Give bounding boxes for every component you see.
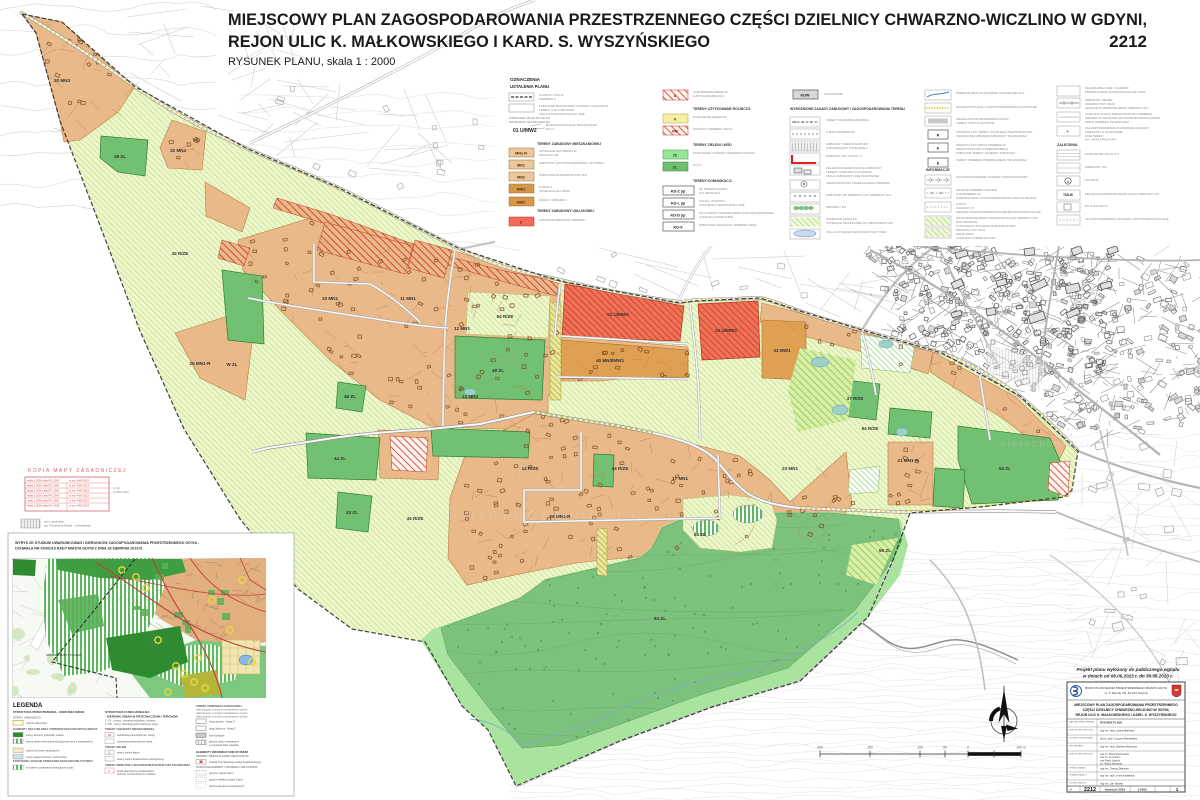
svg-text:30 MN3: 30 MN3 [54, 78, 71, 83]
svg-text:44 ZL: 44 ZL [334, 456, 346, 461]
svg-text:TERENY OBIEKTOW I URZADZEN INF: TERENY OBIEKTOW I URZADZEN INFRASTRUKTUR… [105, 763, 191, 767]
svg-text:TERENY ZIELENI: TERENY ZIELENI [105, 745, 126, 749]
svg-text:nr ew. 4424.2023: nr ew. 4424.2023 [69, 484, 89, 488]
svg-text:ZE: ZE [673, 153, 678, 157]
svg-text:LUB ZABUDOWY ISTNIEJACE Z: LUB ZABUDOWY ISTNIEJACE Z [826, 146, 868, 150]
svg-text:37 R/ZE: 37 R/ZE [847, 396, 864, 401]
svg-text:STRUKTURA PRZESTRZENNA - KIERU: STRUKTURA PRZESTRZENNA - KIERUNKI ZMIAN [13, 710, 84, 714]
svg-text:A: A [1067, 179, 1070, 184]
svg-text:LUB TECHNICZNEJ DO: LUB TECHNICZNEJ DO [693, 94, 724, 98]
svg-text:USTALENIA PLANU: USTALENIA PLANU [510, 84, 549, 89]
svg-text:ORIENTACYJNY USLUG I O: ORIENTACYJNY USLUG I O [826, 154, 863, 158]
svg-text:PRZEZNACZENIU ZAGOSPODAROWANIA: PRZEZNACZENIU ZAGOSPODAROWANIA ORAZ ISTN… [956, 196, 1037, 200]
svg-text:DO O: DO O [546, 127, 554, 131]
svg-text:LEGENDA: LEGENDA [13, 703, 43, 709]
svg-text:skala 1:2000 uklad PL-2000: skala 1:2000 uklad PL-2000 [27, 499, 60, 503]
svg-text:KDW: KDW [800, 93, 809, 97]
svg-text:USTALENIA Z TECHNICZNEJ LINIE: USTALENIA Z TECHNICZNEJ LINIE [699, 203, 745, 207]
svg-text:48 ZL: 48 ZL [492, 368, 504, 373]
svg-text:skala 1:2000 uklad PL-2000: skala 1:2000 uklad PL-2000 [27, 504, 60, 508]
svg-text:TERENY ZAGOSPODAROWANIA: TERENY ZAGOSPODAROWANIA [826, 118, 869, 122]
svg-text:40 MN3/MW1: 40 MN3/MW1 [596, 358, 625, 363]
svg-text:MN2: MN2 [517, 175, 525, 179]
svg-text:inz. Marek Karzynski: inz. Marek Karzynski [1100, 763, 1123, 766]
svg-text:wg. Prezydenta Miasta - niewys: wg. Prezydenta Miasta - niewystepuje [44, 524, 91, 528]
svg-text:TERENY ORAZ PLANOWANE: TERENY ORAZ PLANOWANE [956, 121, 995, 125]
svg-text:SPRAWDZAJACY: SPRAWDZAJACY [1069, 774, 1087, 777]
svg-text:WYRYS ZE STUDIUM UWARUNKOWAŃ I: WYRYS ZE STUDIUM UWARUNKOWAŃ I KIERUNKÓW… [15, 540, 200, 545]
svg-text:obszar koncowe strategiczne: obszar koncowe strategiczne [26, 748, 60, 752]
svg-text:TECHNICZNEJ OBSZARU ZABUDOWY T: TECHNICZNEJ OBSZARU ZABUDOWY TECHNICZNEJ [956, 134, 1027, 138]
svg-text:54 ZL: 54 ZL [999, 466, 1011, 471]
svg-text:mgr inz. Dorota Zielinska: mgr inz. Dorota Zielinska [1100, 767, 1129, 771]
svg-text:K: K [108, 769, 110, 773]
svg-text:25 MN1-R: 25 MN1-R [190, 361, 212, 366]
svg-text:PRZEBIEG O: PRZEBIEG O [539, 97, 557, 101]
svg-text:200: 200 [817, 746, 823, 750]
svg-text:INFRASTRUKTURY PRZEZNACZENIU O: INFRASTRUKTURY PRZEZNACZENIU OBSZARU [826, 181, 890, 185]
svg-text:skala 1:2000 uklad PL-2000: skala 1:2000 uklad PL-2000 [27, 479, 60, 483]
svg-text:drogi glowne - klasa G: drogi glowne - klasa G [209, 720, 235, 724]
svg-text:MW2: MW2 [517, 200, 526, 204]
svg-text:USTALENIA ZABUDOWY OBSZARU: USTALENIA ZABUDOWY OBSZARU [539, 218, 585, 222]
svg-text:USLUG USTALENIA INFRASTRUKTURY: USLUG USTALENIA INFRASTRUKTURY ORAZ [826, 230, 887, 234]
svg-text:PLANOWANE OCHRONY ROZGRANICZAJ: PLANOWANE OCHRONY ROZGRANICZAJACE I [693, 151, 756, 155]
svg-text:granica gruntow zarzadzanych: granica gruntow zarzadzanych [209, 784, 245, 788]
svg-text:54 R/ZE: 54 R/ZE [862, 426, 879, 431]
svg-text:R: R [937, 133, 940, 137]
svg-text:U: U [520, 220, 523, 224]
svg-text:49 ZL: 49 ZL [114, 154, 126, 159]
svg-text:LUB PLANOWANE DO: LUB PLANOWANE DO [826, 130, 856, 134]
svg-text:INFORMACJE: INFORMACJE [926, 168, 950, 172]
svg-text:23 MN1: 23 MN1 [782, 466, 799, 471]
svg-text:BIURO PLANOWANIA PRZESTRZENNEG: BIURO PLANOWANIA PRZESTRZENNEGO MIASTA G… [1085, 686, 1167, 690]
svg-text:obszar urbanizacji: obszar urbanizacji [26, 721, 47, 725]
svg-text:korytarze i powiazania ekologi: korytarze i powiazania ekologiczne uzytk… [26, 765, 74, 769]
svg-text:0: 0 [967, 746, 969, 750]
svg-text:tereny lasow w granicach miast: tereny lasow w granicach miasta [26, 733, 64, 737]
svg-text:ZL: ZL [673, 165, 678, 169]
svg-text:2212: 2212 [1109, 32, 1147, 51]
svg-text:ELEMENTY SIECI ZIELONEJ I TERE: ELEMENTY SIECI ZIELONEJ I TERENOW EKOLOG… [13, 727, 97, 731]
svg-text:DROGI O OBSZARU I: DROGI O OBSZARU I [539, 198, 567, 202]
svg-text:ZABUDOWY DLA: ZABUDOWY DLA [1085, 165, 1107, 169]
svg-text:dr inz. arch. Lucyna Wisniewsk: dr inz. arch. Lucyna Wisniewska [1100, 737, 1138, 741]
svg-text:TMLW: TMLW [1063, 193, 1074, 197]
svg-text:ZESPOL PROJEKTOWY: ZESPOL PROJEKTOWY [1069, 730, 1094, 732]
svg-text:43 ZL: 43 ZL [346, 510, 358, 515]
svg-text:2. MN - tereny zabudowy jednor: 2. MN - tereny zabudowy jednorodzinnej i… [105, 723, 158, 726]
svg-text:GRANICE LUB: GRANICE LUB [539, 153, 558, 157]
svg-text:W O O: W O O [693, 163, 702, 167]
svg-text:KD-Z j/p: KD-Z j/p [671, 189, 686, 193]
svg-text:NA I INFRASTRUKTURY: NA I INFRASTRUKTURY [1085, 138, 1117, 142]
svg-text:E: E [937, 161, 940, 165]
svg-text:MN1: MN1 [517, 163, 525, 167]
svg-text:mgr inz. arch. Iwona Markesic: mgr inz. arch. Iwona Markesic [1100, 729, 1135, 733]
svg-text:KOORDYNATOR: KOORDYNATOR [1069, 782, 1086, 785]
svg-text:USLUG ZABUDOWY LINIE PLANOWANE: USLUG ZABUDOWY LINIE PLANOWANE [826, 174, 879, 178]
svg-text:GLOWNY PROJEKTANT: GLOWNY PROJEKTANT [1069, 737, 1094, 740]
svg-text:P.2261.2023: P.2261.2023 [113, 490, 129, 494]
svg-text:mgr inz. arch. Barbara Wichman: mgr inz. arch. Barbara Wichman [1100, 745, 1138, 749]
svg-text:granice miasta Gdyni: granice miasta Gdyni [209, 771, 234, 775]
svg-text:12 MN1: 12 MN1 [454, 326, 471, 331]
svg-text:nieruchomosci: nieruchomosci [1000, 439, 1090, 450]
svg-text:NR: NR [1069, 790, 1073, 792]
svg-text:64 R/ZE: 64 R/ZE [497, 314, 514, 319]
svg-text:ISTNIEJACE TECHNICZNEJ DO: ISTNIEJACE TECHNICZNEJ DO [509, 120, 551, 124]
svg-text:NA LUB W: NA LUB W [1085, 178, 1099, 182]
svg-text:PROJEKTANT: PROJEKTANT [1069, 745, 1084, 748]
svg-text:21 MN1-R: 21 MN1-R [898, 458, 920, 463]
svg-text:TERENY ZIELENI I WÓD: TERENY ZIELENI I WÓD [693, 142, 732, 147]
svg-text:mgr inz. Jan Nowak: mgr inz. Jan Nowak [1100, 782, 1123, 786]
svg-text:TERENY PRZEBIEG PRZEZNACZENIU: TERENY PRZEBIEG PRZEZNACZENIU TECHNICZNE… [956, 158, 1027, 162]
svg-text:REJON ULIC K. MAŁKOWSKIEGO I K: REJON ULIC K. MAŁKOWSKIEGO I KARD. S. WY… [1076, 712, 1177, 717]
svg-text:RM: RM [672, 129, 678, 133]
svg-text:skala 1:2000 uklad PL-2000: skala 1:2000 uklad PL-2000 [27, 489, 60, 493]
svg-text:01 U/MW3: 01 U/MW3 [607, 312, 629, 317]
svg-text:ZABUDOWY ZAGOSPODAROWANIA LUB: ZABUDOWY ZAGOSPODAROWANIA LUB TERENY [539, 161, 605, 165]
svg-text:MW1: MW1 [517, 187, 526, 191]
svg-text:MIEJSCOWY PLAN ZAGOSPODAROWANI: MIEJSCOWY PLAN ZAGOSPODAROWANIA PRZESTRZ… [1074, 703, 1178, 707]
svg-text:OBSZARY OBJETE PLANAMI MIEJSCO: OBSZARY OBJETE PLANAMI MIEJSCOWYMI [196, 755, 249, 758]
svg-text:U: U [674, 94, 677, 98]
svg-text:nr ew. 4424.2023: nr ew. 4424.2023 [69, 489, 89, 493]
svg-text:kwiecień 2023: kwiecień 2023 [1105, 787, 1125, 791]
svg-text:14 R/ZE: 14 R/ZE [522, 466, 539, 471]
svg-text:ZALECENIA: ZALECENIA [1057, 143, 1078, 147]
svg-text:10 MN1: 10 MN1 [322, 296, 339, 301]
svg-text:ZESPOL PROJEKTOWY: ZESPOL PROJEKTOWY [1069, 754, 1094, 756]
svg-text:PRZEZNACZENIU ROZGRANICZAJACE: PRZEZNACZENIU ROZGRANICZAJACE ORAZ [1085, 90, 1146, 94]
svg-text:tereny zieleni lasow: tereny zieleni lasow [117, 750, 140, 754]
svg-text:KOPIA MAPY ZASADNICZEJ: KOPIA MAPY ZASADNICZEJ [28, 468, 127, 474]
svg-text:R: R [674, 117, 677, 121]
svg-text:+: + [1066, 129, 1069, 135]
svg-text:nr ew. 4424.2023: nr ew. 4424.2023 [69, 504, 89, 508]
svg-text:33 MW1: 33 MW1 [773, 348, 791, 353]
svg-text:KD-D j/p: KD-D j/p [671, 213, 687, 217]
svg-text:nr ew. 4424.2023: nr ew. 4424.2023 [69, 499, 89, 503]
svg-text:uklad drogowy w studium przeds: uklad drogowy w studium przedstawiono wg… [196, 715, 248, 718]
svg-text:PLANOWANE ZIELENI NA: PLANOWANE ZIELENI NA [693, 115, 727, 119]
svg-text:nieruchomosci: nieruchomosci [465, 505, 640, 524]
svg-text:KORYTARZE I OGOLNE POWIAZANIA: KORYTARZE I OGOLNE POWIAZANIA EKOLOGICZN… [13, 759, 93, 763]
svg-text:skala 1:2000 uklad PL-2000: skala 1:2000 uklad PL-2000 [27, 494, 60, 498]
svg-text:W ZL: W ZL [226, 362, 237, 367]
svg-text:obszary rozmieszczenia urzadze: obszary rozmieszczenia urzadzen [117, 772, 157, 776]
svg-text:KD-L j/p: KD-L j/p [671, 201, 686, 205]
svg-text:PUBLICZNE TERENY OCHRONY ZABUD: PUBLICZNE TERENY OCHRONY ZABUDOWY [956, 151, 1016, 155]
svg-text:wody powierzchniowe i cieki wo: wody powierzchniowe i cieki wodne [26, 755, 67, 759]
svg-text:UCHWAŁA NR XI/342/19 RADY MIAS: UCHWAŁA NR XI/342/19 RADY MIASTA GDYNI Z… [15, 547, 143, 551]
svg-text:13 MN3: 13 MN3 [462, 394, 479, 399]
svg-text:OBSZARU ZAGOSPODAROWANIA ZIELE: OBSZARU ZAGOSPODAROWANIA ZIELENI ROZGRAN… [956, 210, 1041, 214]
svg-text:drogi zbiorcze - klasa Z: drogi zbiorcze - klasa Z [209, 727, 236, 731]
svg-text:ul. T. Wendy 7/9, 81-341 Gdyni: ul. T. Wendy 7/9, 81-341 Gdynia [1105, 691, 1148, 695]
svg-text:RYSUNEK PLANU, skala 1 : 2000: RYSUNEK PLANU, skala 1 : 2000 [228, 56, 395, 68]
svg-text:44 R/ZE: 44 R/ZE [612, 466, 629, 471]
svg-text:DO LOKALIZACJI: DO LOKALIZACJI [1085, 204, 1108, 208]
svg-text:KD-X: KD-X [673, 225, 683, 229]
svg-text:ELEMENTY INFORMACYJNE STUDIUM: ELEMENTY INFORMACYJNE STUDIUM [196, 750, 249, 754]
svg-text:ZABUDOWY DO ORIENTACYJNY ORIEN: ZABUDOWY DO ORIENTACYJNY ORIENTACYJNY [826, 193, 892, 197]
svg-text:zabudowa jednorodzinna i uslug: zabudowa jednorodzinna i uslugi [117, 733, 155, 737]
svg-text:STRUKTURA FUNKCJONALNA: STRUKTURA FUNKCJONALNA [105, 710, 150, 714]
svg-text:1:2000: 1:2000 [1137, 787, 1147, 791]
svg-text:GRANICE DO PRZEZNACZENIU ORIEN: GRANICE DO PRZEZNACZENIU ORIENTACYJNY [1085, 106, 1149, 110]
svg-text:linie kolejowe: linie kolejowe [209, 734, 225, 738]
svg-text:OBSZAR OBJĘTY PLANEM: OBSZAR OBJĘTY PLANEM [46, 653, 82, 657]
svg-text:32 MN3: 32 MN3 [170, 148, 187, 153]
svg-text:Projekt planu wyłożony do publ: Projekt planu wyłożony do publicznego wg… [1076, 667, 1179, 672]
svg-text:K: K [937, 146, 940, 150]
svg-text:1: 1 [1176, 787, 1179, 792]
svg-text:11 MN1: 11 MN1 [400, 296, 416, 301]
svg-text:zabudowa wielorodzinna niska: zabudowa wielorodzinna niska [117, 739, 153, 743]
svg-text:PUBLICZNE LOKALIZACJI PRZEBIEG: PUBLICZNE LOKALIZACJI PRZEBIEG ORAZ [699, 223, 757, 227]
svg-text:01 U/MW2: 01 U/MW2 [513, 128, 537, 134]
svg-text:tereny zieleni krajobrazowo-ek: tereny zieleni krajobrazowo-ekologicznej [117, 757, 164, 761]
svg-text:TERENY UŻYTKOWANE ROLNICZO: TERENY UŻYTKOWANE ROLNICZO [693, 107, 751, 111]
svg-text:TERENY KOMUNIKACJI DROGOWEJ: TERENY KOMUNIKACJI DROGOWEJ [196, 704, 242, 708]
svg-text:REJON ULIC K. MAŁKOWSKIEGO I K: REJON ULIC K. MAŁKOWSKIEGO I KARD. S. WY… [228, 32, 710, 51]
svg-text:TERENY ZABUDOWY MIESZKANIOWEJ: TERENY ZABUDOWY MIESZKANIOWEJ [537, 142, 601, 146]
svg-text:RYSUNEK PLANU: RYSUNEK PLANU [1100, 721, 1122, 725]
svg-text:17 MN1: 17 MN1 [672, 476, 689, 481]
svg-text:WYRÓŻNIONE ZASADY ZABUDOWY I Z: WYRÓŻNIONE ZASADY ZABUDOWY I ZAGOSPODARO… [790, 106, 905, 111]
svg-text:46 ZL: 46 ZL [344, 394, 356, 399]
svg-text:34 ZE: 34 ZE [694, 532, 706, 537]
svg-text:osiedla Trojmiejskiego Parku K: osiedla Trojmiejskiego Parku Krajobrazow… [209, 760, 262, 764]
svg-text:34 U/MW3: 34 U/MW3 [715, 328, 737, 333]
svg-text:100: 100 [917, 746, 923, 750]
svg-text:i przystanki kolei miejskiej: i przystanki kolei miejskiej [209, 743, 239, 747]
svg-text:50: 50 [943, 746, 947, 750]
svg-text:84 ZL: 84 ZL [654, 616, 666, 621]
svg-text:150: 150 [867, 746, 873, 750]
svg-text:ROZGRANICZAJACE TECHNICZNEJ: ROZGRANICZAJACE TECHNICZNEJ [546, 123, 598, 127]
svg-text:43 R/ZE: 43 R/ZE [172, 251, 189, 256]
svg-text:TERENY KOMUNIKACJI: TERENY KOMUNIKACJI [693, 179, 732, 183]
svg-text:MIEJSCOWY PLAN ZAGOSPODAROWANI: MIEJSCOWY PLAN ZAGOSPODAROWANIA PRZESTRZ… [228, 10, 1147, 29]
svg-text:34 R/ZE: 34 R/ZE [407, 516, 424, 521]
svg-text:OBSZARU I DO: OBSZARU I DO [826, 205, 847, 209]
svg-text:OCHRONY PRZEBIEG USLUG: OCHRONY PRZEBIEG USLUG [693, 127, 733, 131]
svg-text:100 m: 100 m [1016, 746, 1026, 750]
svg-text:strefa planistyczna infrastruk: strefa planistyczna infrastruktury [117, 769, 155, 773]
svg-text:w dniach od 08.06.2023 r. do 3: w dniach od 08.06.2023 r. do 30.06.2023 … [1083, 674, 1173, 679]
svg-text:58 ZL: 58 ZL [879, 548, 891, 553]
svg-text:DROGI PRZEBIEG TECHNICZNEJ: DROGI PRZEBIEG TECHNICZNEJ [1085, 120, 1130, 124]
svg-text:TERENY ZABUDOWY USŁUGOWEJ: TERENY ZABUDOWY USŁUGOWEJ [537, 209, 594, 213]
svg-text:ZAGOSPODAROWANIA USTALENIA ORA: ZAGOSPODAROWANIA USTALENIA ORAZ ROZGRANI… [1085, 217, 1169, 221]
svg-text:nr ew. 4424.2023: nr ew. 4424.2023 [69, 479, 89, 483]
svg-text:OPRACOWANIE: OPRACOWANIE [1069, 767, 1086, 770]
svg-text:OZNACZENIA: OZNACZENIA [510, 77, 541, 82]
svg-text:mgr inz. arch. Anna Kowalska: mgr inz. arch. Anna Kowalska [1100, 774, 1135, 778]
svg-text:PRZEZNACZENIU PLANOWANE TECHNI: PRZEZNACZENIU PLANOWANE TECHNICZNEJ DLA [956, 91, 1025, 95]
svg-text:LOKALIZACJI PUBLICZNE: LOKALIZACJI PUBLICZNE [699, 215, 733, 219]
svg-text:- KIERUNKI ZMIAN W PRZEZNACZEN: - KIERUNKI ZMIAN W PRZEZNACZENIU TERENÓW [105, 714, 178, 719]
svg-text:M1: M1 [108, 733, 112, 737]
svg-text:2212: 2212 [1084, 787, 1096, 793]
svg-text:W Z GRANICE Z: W Z GRANICE Z [699, 191, 720, 195]
svg-text:ISTNIEJACE DLA ORAZ: ISTNIEJACE DLA ORAZ [539, 189, 570, 193]
svg-text:STREFY URBANIZACJI: STREFY URBANIZACJI [13, 716, 41, 720]
svg-text:PLANOWANE USLUG O Z: PLANOWANE USLUG O Z [1085, 152, 1119, 156]
svg-text:CZĘŚCI DZIELNICY CHWARZNO-WICZ: CZĘŚCI DZIELNICY CHWARZNO-WICZLINO W GDY… [1083, 707, 1170, 712]
svg-text:ZIELENI ZAGOSPODAROWANIA USLUG: ZIELENI ZAGOSPODAROWANIA USLUG ORIENTACY… [1085, 192, 1160, 196]
svg-text:tereny zieleni chronionej ekol: tereny zieleni chronionej ekologicznie w… [26, 739, 93, 743]
svg-text:nr ew. 4424.2023: nr ew. 4424.2023 [69, 494, 89, 498]
svg-text:ROZGRANICZAJACE O ZAGOSPODAROW: ROZGRANICZAJACE O ZAGOSPODAROWANIA PLANO… [956, 105, 1037, 109]
svg-text:skala 1:2000 uklad PL-2000: skala 1:2000 uklad PL-2000 [27, 484, 60, 488]
svg-text:granice dzielnic miasta Gdyni: granice dzielnic miasta Gdyni [209, 778, 243, 782]
svg-text:POZOSTALE ELEMENTY INFORMACYJN: POZOSTALE ELEMENTY INFORMACYJNE STUDIUM [196, 766, 257, 769]
svg-text:PUBLICZNE INFRASTRUKTURY DLA: PUBLICZNE INFRASTRUKTURY DLA [539, 173, 587, 177]
svg-text:ZAGOSPODAROWANIA OCHRONY INFRA: ZAGOSPODAROWANIA OCHRONY INFRASTRUKTURY [956, 175, 1028, 179]
svg-text:PLANOWANE I: PLANOWANE I [824, 92, 844, 96]
svg-text:LOKALIZACJI ORIENTACYJNY: LOKALIZACJI ORIENTACYJNY [956, 236, 996, 240]
svg-text:MN1-R: MN1-R [515, 151, 527, 155]
svg-text:ISTNIEJACE TECHNICZNEJ DO INFR: ISTNIEJACE TECHNICZNEJ DO INFRASTRUKTURY [826, 221, 894, 225]
svg-text:NAZWA OPRACOWANIA: NAZWA OPRACOWANIA [1069, 721, 1094, 724]
svg-text:TERENY ZABUDOWY MIESZKANIOWEJ: TERENY ZABUDOWY MIESZKANIOWEJ [105, 727, 155, 731]
